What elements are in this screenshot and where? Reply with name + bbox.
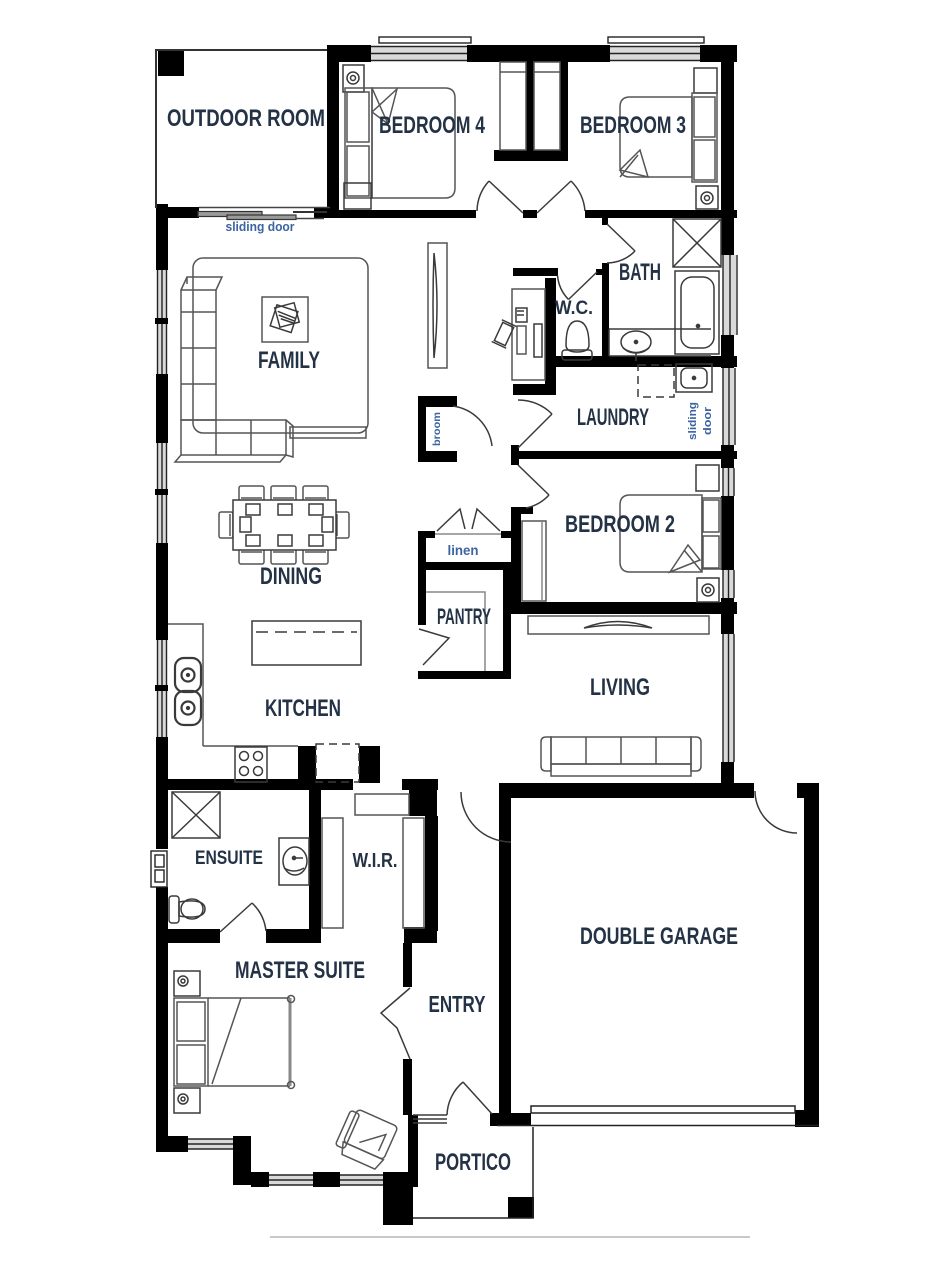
svg-text:FAMILY: FAMILY (258, 347, 320, 374)
svg-text:linen: linen (448, 542, 479, 558)
svg-text:LIVING: LIVING (590, 674, 650, 701)
svg-text:PORTICO: PORTICO (435, 1149, 511, 1176)
svg-text:BEDROOM 4: BEDROOM 4 (379, 112, 485, 139)
svg-text:ENSUITE: ENSUITE (195, 848, 263, 869)
svg-text:BATH: BATH (619, 259, 661, 286)
svg-text:KITCHEN: KITCHEN (265, 695, 341, 722)
svg-text:BEDROOM 2: BEDROOM 2 (565, 511, 675, 538)
svg-text:MASTER SUITE: MASTER SUITE (235, 957, 365, 984)
svg-text:ENTRY: ENTRY (429, 991, 486, 1017)
svg-text:door: door (702, 406, 714, 435)
svg-text:sliding: sliding (687, 402, 699, 440)
svg-text:BEDROOM 3: BEDROOM 3 (580, 112, 686, 139)
svg-text:W.I.R.: W.I.R. (353, 850, 398, 872)
svg-text:DINING: DINING (260, 563, 322, 590)
svg-text:W.C.: W.C. (555, 298, 593, 319)
svg-text:PANTRY: PANTRY (437, 604, 491, 629)
svg-text:DOUBLE GARAGE: DOUBLE GARAGE (580, 923, 738, 950)
svg-text:OUTDOOR ROOM: OUTDOOR ROOM (167, 105, 325, 132)
svg-text:broom: broom (432, 412, 443, 446)
svg-text:LAUNDRY: LAUNDRY (577, 404, 649, 431)
svg-text:sliding door: sliding door (226, 219, 295, 234)
